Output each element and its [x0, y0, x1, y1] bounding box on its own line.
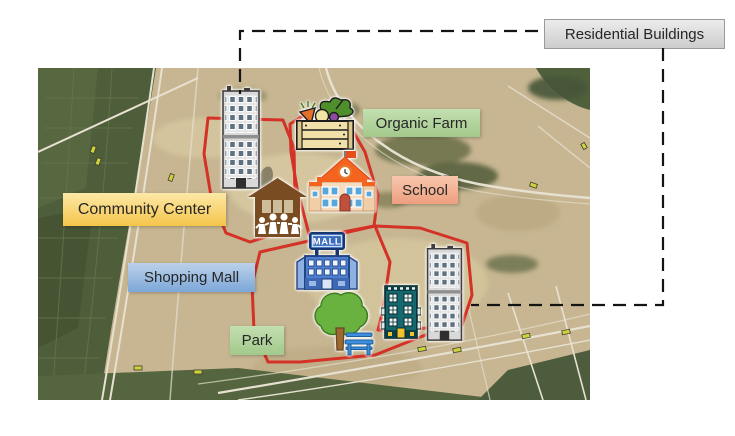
- label-community-center: Community Center: [63, 193, 226, 226]
- label-school: School: [392, 176, 458, 204]
- school-building-icon: [308, 149, 376, 213]
- label-shopping-mall: Shopping Mall: [128, 263, 255, 292]
- label-residential-buildings: Residential Buildings: [544, 19, 725, 49]
- label-organic-farm-text: Organic Farm: [376, 115, 468, 132]
- label-organic-farm: Organic Farm: [363, 109, 480, 137]
- planning-map-figure: MALL: [0, 0, 735, 436]
- label-residential-buildings-text: Residential Buildings: [565, 26, 704, 43]
- shopping-mall-building-icon: MALL: [295, 232, 359, 290]
- mall-sign-text: MALL: [313, 237, 341, 248]
- park-tree-bench-icon: [307, 288, 376, 357]
- label-park-text: Park: [242, 332, 273, 349]
- label-park: Park: [230, 326, 284, 355]
- residential-tower-icon: [220, 86, 262, 190]
- label-shopping-mall-text: Shopping Mall: [144, 269, 239, 286]
- residential-tower-2-icon: [424, 244, 465, 342]
- community-center-pavilion-icon: [248, 178, 307, 239]
- organic-farm-crate-icon: [292, 95, 358, 151]
- label-school-text: School: [402, 182, 448, 199]
- apartment-building-icon: [381, 284, 421, 342]
- label-community-center-text: Community Center: [78, 201, 211, 219]
